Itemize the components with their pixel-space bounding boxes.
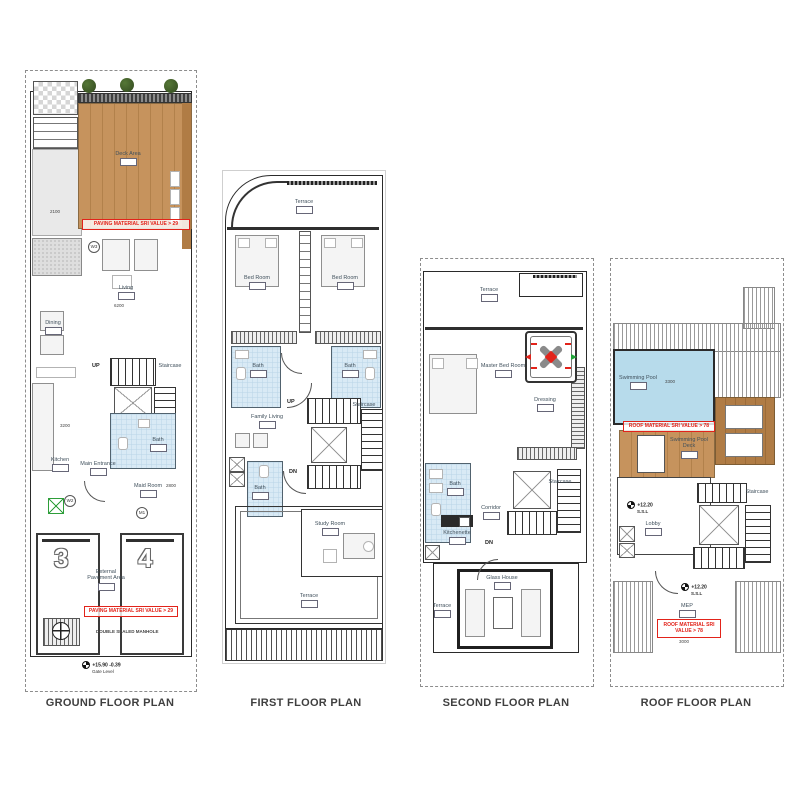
room-label-external-pavement: External Pavement Area [86, 569, 126, 591]
pillow [466, 358, 478, 369]
level-marker: +12.20 [627, 501, 653, 509]
terrazzo-area [32, 238, 82, 276]
sofa [134, 239, 158, 271]
paving-stripe-area [33, 117, 78, 149]
dim-label: 3000 [679, 639, 689, 644]
room-label-terrace-bottom: Terrace [289, 593, 329, 608]
title-second: SECOND FLOOR PLAN [420, 697, 592, 709]
pillow [265, 238, 277, 248]
room-label-terrace-side: Terrace [427, 603, 457, 618]
room-label-mep: MEP [673, 603, 701, 618]
wardrobe [315, 331, 381, 344]
armchair [253, 433, 268, 448]
room-tag [98, 583, 115, 591]
room-label-maid: Maid Room [128, 483, 168, 498]
room-tag [252, 492, 269, 500]
room-label-corridor: Corridor [473, 505, 509, 520]
room-tag [301, 600, 318, 608]
roof-floor-plan: Swimming Pool 3300 ROOF MATERIAL SRI VAL… [610, 258, 784, 687]
room-label-lobby: Lobby [637, 521, 669, 536]
up-label: UP [287, 399, 295, 405]
room-label-terrace-top: Terrace [469, 287, 509, 302]
room-tag [679, 610, 696, 618]
flow-arrow-left [525, 354, 531, 360]
room-tag [120, 158, 137, 166]
room-tag [681, 451, 698, 459]
wardrobe [517, 447, 577, 460]
lift-shaft [311, 427, 347, 463]
roof-hatch-right-low [735, 581, 781, 653]
level-sub: Gate Level [92, 669, 114, 674]
room-tag [495, 370, 512, 378]
terrace-edge-hatch [287, 181, 377, 185]
room-tag [449, 537, 466, 545]
room-label-bath-small: Bath [247, 485, 273, 500]
dim-label: 3300 [665, 379, 675, 384]
room-label-study: Study Room [307, 521, 353, 536]
benchmark-icon [627, 501, 635, 509]
room-tag [150, 444, 167, 452]
room-tag [296, 206, 313, 214]
sofa [465, 589, 485, 637]
planter-strip [78, 93, 192, 103]
closet-divider [299, 231, 311, 333]
room-tag [118, 292, 135, 300]
room-label-bath-right: Bath [337, 363, 363, 378]
room-tag [481, 294, 498, 302]
sink-fixture [138, 419, 150, 428]
title-first: FIRST FLOOR PLAN [222, 697, 390, 709]
roof-hatch-band [613, 323, 781, 352]
room-label-family-living: Family Living [239, 414, 295, 429]
room-label-pool-deck: Swimming Pool Deck [667, 437, 711, 459]
sofa [521, 589, 541, 637]
wheel-stop [42, 539, 90, 542]
room-label-terrace-top: Terrace [279, 199, 329, 214]
roof-hatch-left [613, 581, 653, 653]
tree-icon [82, 79, 96, 93]
stairs [307, 465, 361, 489]
dn-label: DN [485, 540, 493, 546]
room-tag [537, 404, 554, 412]
jet-tick [531, 343, 537, 345]
room-label-main-entrance: Main Entrance [80, 461, 116, 476]
benchmark-icon [82, 661, 90, 669]
shaft [619, 526, 635, 542]
skylight [725, 405, 763, 429]
chair [363, 541, 374, 552]
tree-icon [120, 78, 134, 92]
level-sub: S.S.L [691, 591, 702, 596]
ground-floor-plan: 2100 Deck Area PAVING MATERIAL SRI VALUE… [25, 70, 197, 692]
pillow [324, 238, 336, 248]
room-label-kitchen: Kitchen [44, 457, 76, 472]
shaft [425, 545, 440, 560]
room-label-staircase: Staircase [152, 363, 188, 369]
pavement-gray-area [32, 149, 82, 236]
jet-tick [531, 367, 537, 369]
room-tag [630, 382, 647, 390]
room-tag [337, 282, 354, 290]
lift-shaft [699, 505, 739, 545]
room-label-glass-house: Glass House [473, 575, 531, 590]
first-floor-plan: Terrace Bed Room Bed Room Bath [222, 170, 386, 664]
paving-sri-note-bottom: PAVING MATERIAL SRI VALUE > 29 [84, 606, 178, 617]
flow-arrow-right [571, 354, 577, 360]
wall [425, 327, 583, 330]
room-label-master-bedroom: Master Bed Room [479, 363, 527, 378]
room-label-deck: Deck Area [98, 151, 158, 166]
sink-fixture [235, 350, 249, 359]
wc-fixture [365, 367, 375, 380]
room-label-bath: Bath [443, 481, 467, 496]
manhole-note: DOUBLE SEALED MANHOLE [96, 629, 160, 634]
skylight [725, 433, 763, 457]
stairs [361, 409, 383, 471]
dn-label: DN [289, 469, 297, 475]
window-tag: W3 [88, 241, 100, 253]
wardrobe [231, 331, 297, 344]
jet-tick [565, 367, 571, 369]
level-sub: S.S.L [637, 509, 648, 514]
room-tag [494, 582, 511, 590]
manhole-cover-icon [52, 622, 70, 640]
door-tag: M1 [136, 507, 148, 519]
room-label-bath: Bath [144, 437, 172, 452]
tree-icon [164, 79, 178, 93]
sofa [102, 239, 130, 271]
room-label-bedroom-left: Bed Room [235, 275, 279, 290]
second-floor-plan: Terrace Master Bed Room Dressing [420, 258, 594, 687]
wc-fixture [118, 437, 128, 450]
stairs [110, 358, 156, 386]
shaft [229, 472, 245, 487]
jacuzzi [525, 331, 577, 383]
room-label-living: Living [106, 285, 146, 300]
wc-fixture [259, 465, 269, 478]
room-label-staircase: Staircase [345, 402, 383, 408]
level-marker: +15.90 -0.39 [82, 661, 121, 669]
cabinet [323, 549, 337, 563]
door-arc [655, 571, 678, 594]
room-label-dressing: Dressing [525, 397, 565, 412]
dim-label: 3200 [60, 423, 70, 428]
table [493, 597, 513, 629]
room-label-bedroom-right: Bed Room [323, 275, 367, 290]
dim-label: 2800 [166, 483, 176, 488]
title-roof: ROOF FLOOR PLAN [610, 697, 782, 709]
room-label-bath-left: Bath [245, 363, 271, 378]
dim-label: 2100 [50, 209, 60, 214]
dining-table [40, 335, 64, 355]
wall [227, 227, 379, 230]
shaft-top [637, 435, 665, 473]
stairs [693, 547, 745, 569]
room-tag [140, 490, 157, 498]
room-tag [434, 610, 451, 618]
room-label-kitchenette: Kitchenette [435, 530, 479, 545]
room-label-pool: Swimming Pool [617, 375, 659, 390]
dim-label: 6200 [114, 303, 124, 308]
lounger [170, 189, 180, 205]
room-tag [249, 282, 266, 290]
room-tag [483, 512, 500, 520]
window-tag: W2 [64, 495, 76, 507]
room-tag [90, 468, 107, 476]
lift-shaft [513, 471, 551, 509]
pillow [432, 358, 444, 369]
room-tag [45, 327, 62, 335]
paving-checker-area [33, 81, 78, 115]
room-tag [52, 464, 69, 472]
shaft [229, 457, 245, 472]
wheel-stop [126, 539, 174, 542]
roof-hatch-right [713, 350, 781, 398]
roof-sri-note-bottom: ROOF MATERIAL SRI VALUE > 78 [657, 619, 721, 638]
shaft [619, 543, 635, 558]
bar-counter [36, 367, 76, 378]
room-label-dining: Dining [36, 320, 70, 335]
room-tag [322, 528, 339, 536]
parking-number-3: 3 [54, 543, 68, 574]
sink-fixture [429, 469, 443, 479]
shaft-green [48, 498, 64, 514]
stairs [507, 511, 557, 535]
room-label-staircase: Staircase [539, 479, 581, 485]
up-label: UP [92, 363, 100, 369]
pillow [238, 238, 250, 248]
pillow [351, 238, 363, 248]
room-label-staircase: Staircase [737, 489, 777, 495]
room-tag [342, 370, 359, 378]
pergola-louvers [225, 629, 383, 661]
kitchenette-sink [459, 517, 470, 527]
wc-fixture [431, 503, 441, 516]
parking-number-4: 4 [138, 543, 152, 574]
room-tag [259, 421, 276, 429]
benchmark-icon [681, 583, 689, 591]
sink-fixture [363, 350, 377, 359]
room-tag [250, 370, 267, 378]
drawing-sheet: 2100 Deck Area PAVING MATERIAL SRI VALUE… [0, 0, 800, 800]
level-marker: +12.20 [681, 583, 707, 591]
armchair [235, 433, 250, 448]
room-tag [447, 488, 464, 496]
roof-sri-note-top: ROOF MATERIAL SRI VALUE > 78 [623, 421, 715, 432]
title-ground: GROUND FLOOR PLAN [25, 697, 195, 709]
stairs [745, 505, 771, 563]
lounger [170, 171, 180, 187]
sink-fixture [429, 483, 443, 493]
room-tag [645, 528, 662, 536]
paving-sri-note-top: PAVING MATERIAL SRI VALUE > 29 [82, 219, 190, 230]
jet-tick [565, 343, 571, 345]
balcony-edge-hatch [533, 275, 577, 278]
